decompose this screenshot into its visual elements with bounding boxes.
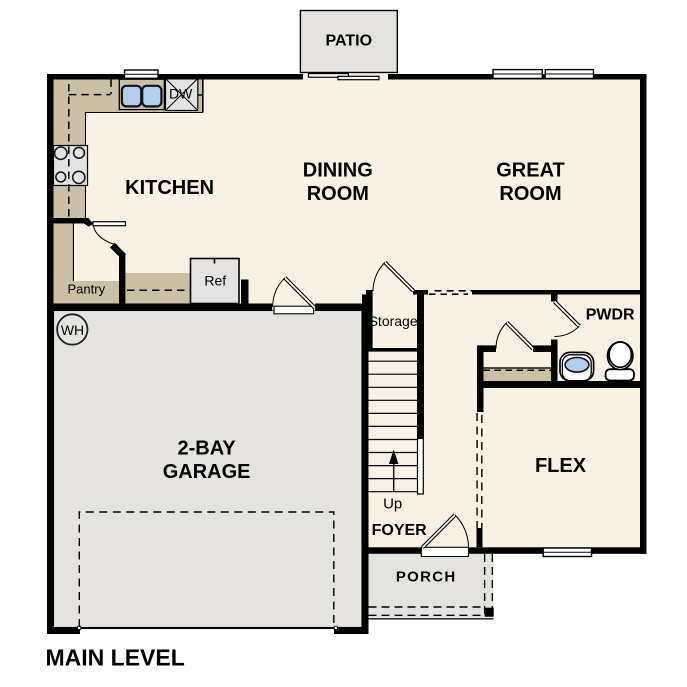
svg-text:WH: WH <box>61 322 84 338</box>
svg-text:ROOM: ROOM <box>499 183 561 205</box>
svg-text:PORCH: PORCH <box>396 569 457 586</box>
svg-text:Storage: Storage <box>369 313 418 329</box>
svg-text:FLEX: FLEX <box>535 455 587 477</box>
svg-text:Up: Up <box>383 495 402 512</box>
svg-text:PWDR: PWDR <box>586 307 635 324</box>
svg-text:FOYER: FOYER <box>372 522 428 539</box>
svg-text:DW: DW <box>169 85 193 101</box>
svg-text:GARAGE: GARAGE <box>163 461 251 483</box>
svg-text:ROOM: ROOM <box>307 183 369 205</box>
svg-text:Ref: Ref <box>204 273 226 289</box>
svg-text:DINING: DINING <box>303 159 373 181</box>
svg-text:GREAT: GREAT <box>496 159 565 181</box>
svg-text:Pantry: Pantry <box>68 282 106 297</box>
svg-text:2-BAY: 2-BAY <box>178 437 237 459</box>
svg-text:MAIN LEVEL: MAIN LEVEL <box>46 645 185 671</box>
svg-text:KITCHEN: KITCHEN <box>125 177 214 199</box>
svg-text:PATIO: PATIO <box>326 33 373 50</box>
